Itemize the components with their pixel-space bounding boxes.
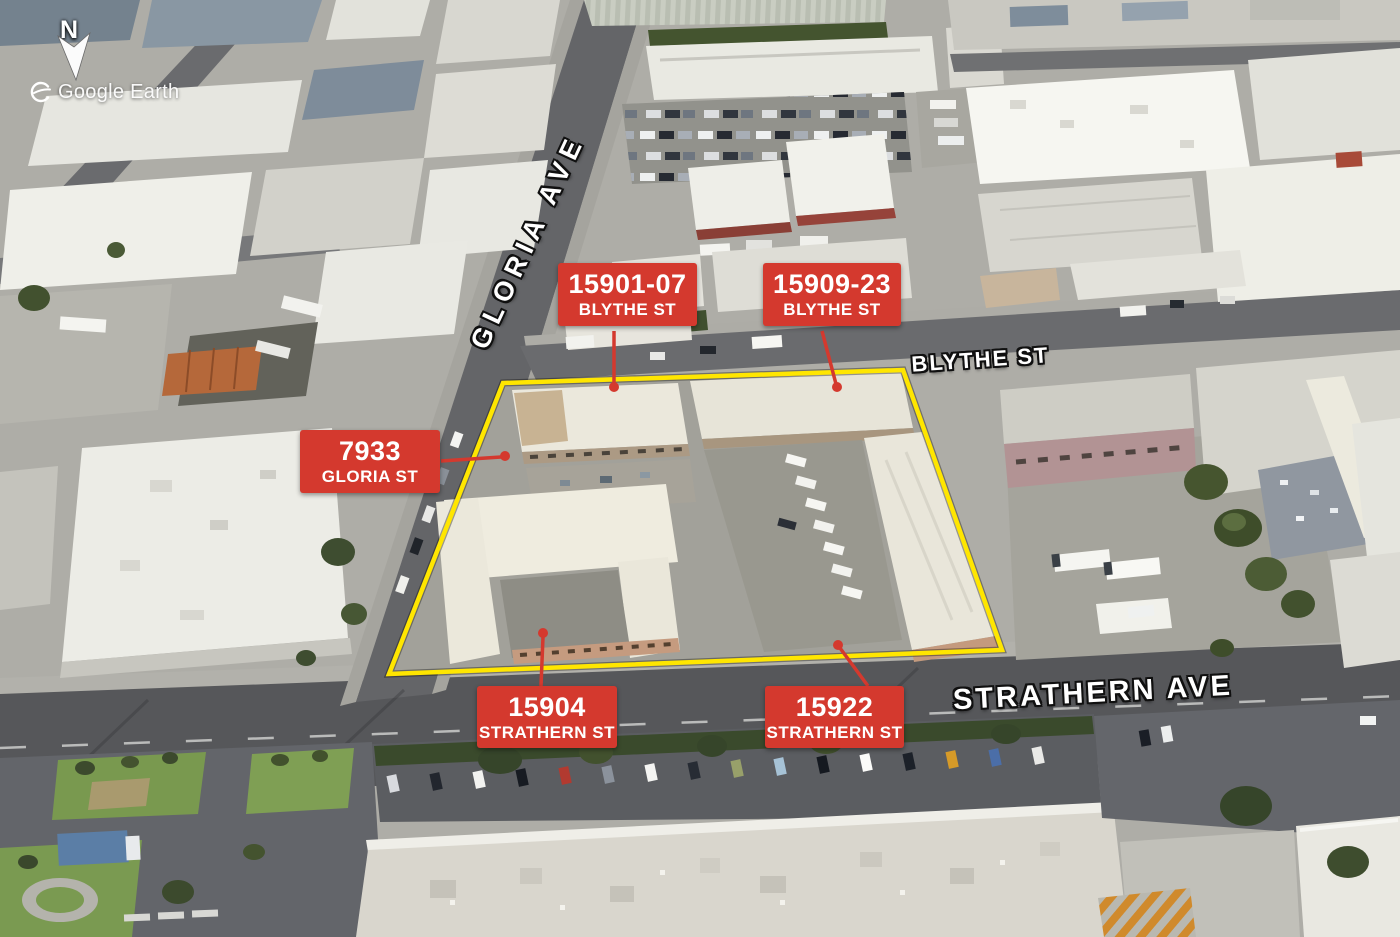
address-number: 15904 bbox=[477, 694, 617, 721]
address-street: BLYTHE ST bbox=[763, 301, 901, 318]
address-number: 7933 bbox=[300, 438, 440, 465]
address-street: STRATHERN ST bbox=[477, 724, 617, 741]
google-earth-watermark: Google Earth bbox=[28, 80, 179, 104]
address-street: STRATHERN ST bbox=[765, 724, 904, 741]
google-earth-icon bbox=[28, 80, 52, 104]
property-label-7933-gloria: 7933 GLORIA ST bbox=[300, 430, 440, 493]
aerial-map: 15901-07 BLYTHE ST 15909-23 BLYTHE ST 79… bbox=[0, 0, 1400, 937]
property-label-15901-07-blythe: 15901-07 BLYTHE ST bbox=[558, 263, 697, 326]
property-label-15904-strathern: 15904 STRATHERN ST bbox=[477, 686, 617, 748]
address-number: 15909-23 bbox=[763, 271, 901, 298]
buildings-east bbox=[1000, 350, 1400, 668]
address-number: 15901-07 bbox=[558, 271, 697, 298]
aerial-imagery bbox=[0, 0, 1400, 937]
address-street: BLYTHE ST bbox=[558, 301, 697, 318]
google-earth-text: Google Earth bbox=[58, 81, 179, 104]
property-label-15922-strathern: 15922 STRATHERN ST bbox=[765, 686, 904, 748]
property-label-15909-23-blythe: 15909-23 BLYTHE ST bbox=[763, 263, 901, 326]
address-number: 15922 bbox=[765, 694, 904, 721]
address-street: GLORIA ST bbox=[300, 468, 440, 485]
